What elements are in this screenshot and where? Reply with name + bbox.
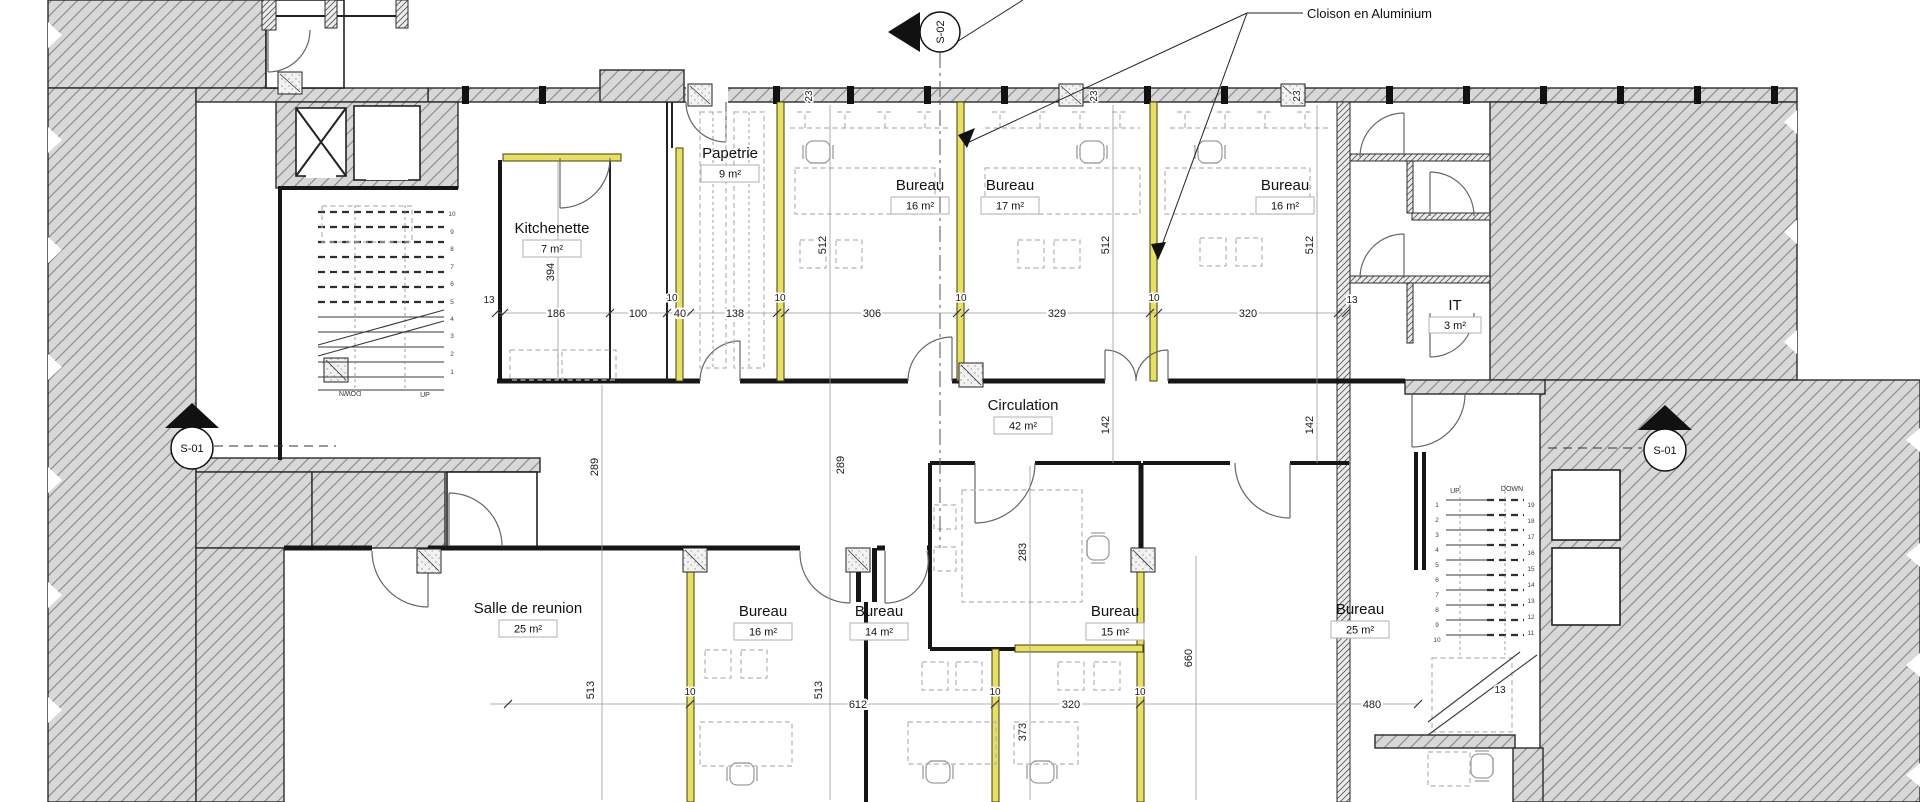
partition-bureau14-15: [992, 649, 999, 802]
stair-down-label: DOWN: [1501, 486, 1523, 493]
room-label-bureau-bottom-1: Bureau: [739, 603, 787, 620]
stair-number: 17: [1527, 534, 1535, 541]
chair-symbol: [705, 650, 731, 678]
room-label-salle: Salle de reunion: [474, 600, 582, 617]
dim-394: 394: [545, 263, 557, 281]
dim-513: 513: [585, 681, 597, 699]
s02-label: S-02: [935, 20, 947, 43]
chair-symbol: [922, 662, 948, 690]
dim-10: 10: [1148, 293, 1160, 304]
chair-symbol: [1236, 238, 1262, 266]
dim-329: 329: [1048, 308, 1066, 320]
dim-283: 283: [1017, 543, 1029, 561]
stair-number: 18: [1527, 518, 1535, 525]
chair-symbol: [956, 662, 982, 690]
wall-stair-bottom: [1375, 735, 1515, 748]
dim-wall-13: 13: [483, 295, 495, 306]
section-marker-s02: S-02: [888, 12, 960, 52]
cloison-annotation: Cloison en Aluminium: [1307, 6, 1432, 21]
dim-512: 512: [817, 236, 829, 254]
chair-symbol: [836, 240, 862, 268]
dim-480: 480: [1363, 699, 1381, 711]
dim-23: 23: [804, 90, 815, 102]
dim-660: 660: [1183, 649, 1195, 667]
stair-number: 10: [448, 211, 456, 218]
interior-hatched-walls: [1337, 102, 1490, 802]
stair-number: 10: [1433, 637, 1441, 644]
stair-number: 4: [450, 316, 454, 323]
floor-plan-drawing: 10 9 8 7 6 5 4 3 2 1 DOWN UP 19 18 17 16…: [0, 0, 1920, 802]
workstation-row: [1170, 112, 1330, 128]
dim-wall-13: 13: [1346, 295, 1358, 306]
wall-top-left-block: [48, 0, 266, 88]
chair-symbol: [1200, 238, 1226, 266]
kitchen-counter: [562, 350, 616, 380]
partition-kitchenette-top: [503, 154, 621, 161]
stair-number: 3: [450, 333, 454, 340]
annotation-leader: Cloison en Aluminium: [958, 6, 1432, 260]
room-label-it: IT: [1448, 297, 1461, 314]
room-label-bureau-top-3: Bureau: [1261, 177, 1309, 194]
room-label-circulation: Circulation: [988, 397, 1059, 414]
stair-number: 7: [1435, 592, 1439, 599]
chair-symbol: [934, 505, 956, 529]
dim-23: 23: [1292, 90, 1303, 102]
partition-bureau-17-16: [1150, 102, 1157, 381]
dim-289: 289: [589, 458, 601, 476]
s01-left-label: S-01: [180, 443, 203, 455]
room-label-bureau-top-1: Bureau: [896, 177, 944, 194]
stair-number: 12: [1527, 614, 1535, 621]
elevator-door-gap: [306, 170, 336, 178]
chair-symbol: [934, 547, 956, 571]
wall-top-jog: [600, 70, 684, 102]
interior-black-walls: [280, 102, 1426, 802]
dim-142: 142: [1304, 416, 1316, 434]
room-area-circulation: 42 m²: [1009, 421, 1037, 433]
room-area-bureau-bottom-1: 16 m²: [749, 627, 777, 639]
stair-number: 1: [1435, 502, 1439, 509]
dim-23: 23: [1089, 90, 1100, 102]
partition-meeting-bottom: [1015, 645, 1143, 652]
partition-salle-bureau16: [687, 554, 694, 802]
stair-number: 4: [1435, 547, 1439, 554]
stair-down-label: DOWN: [339, 389, 361, 396]
dim-142: 142: [1100, 416, 1112, 434]
room-label-bureau-bottom-2: Bureau: [855, 603, 903, 620]
room-labels: Kitchenette 7 m² Papetrie 9 m² Bureau 16…: [474, 145, 1481, 640]
dim-512: 512: [1100, 236, 1112, 254]
stair-number: 2: [1435, 517, 1439, 524]
right-shaft-a: [1552, 470, 1620, 540]
dim-10: 10: [1134, 687, 1146, 698]
partition-bureau15-25: [1137, 556, 1144, 802]
desk-table: [1428, 752, 1470, 786]
dim-138: 138: [726, 308, 744, 320]
room-area-bureau-bottom-2: 14 m²: [865, 627, 893, 639]
dim-10: 10: [989, 687, 1001, 698]
stair-number: 5: [1435, 562, 1439, 569]
dim-100: 100: [629, 308, 647, 320]
dim-306: 306: [863, 308, 881, 320]
chair-symbol: [1018, 240, 1044, 268]
dim-320b: 320: [1062, 699, 1080, 711]
dim-10: 10: [774, 293, 786, 304]
dim-320: 320: [1239, 308, 1257, 320]
stair-number: 7: [450, 264, 454, 271]
partition-bureau-16-17: [957, 102, 964, 381]
desk-table: [908, 722, 996, 764]
desk-table: [700, 722, 792, 766]
room-area-bureau-top-3: 16 m²: [1271, 201, 1299, 213]
stair-number: 14: [1527, 582, 1535, 589]
room-area-bureau-bottom-3: 15 m²: [1101, 627, 1129, 639]
shaft-door-gap: [366, 174, 408, 180]
stair-number: 8: [1435, 607, 1439, 614]
stair-number: 8: [450, 246, 454, 253]
partition-papetrie-right: [777, 102, 784, 381]
dim-612: 612: [849, 699, 867, 711]
dim-10: 10: [666, 293, 678, 304]
dim-40: 40: [674, 308, 686, 320]
dim-10: 10: [955, 293, 967, 304]
stair-number: 9: [1435, 622, 1439, 629]
s01-right-label: S-01: [1653, 445, 1676, 457]
exterior-hatched-walls: [48, 0, 1920, 802]
room-label-kitchenette: Kitchenette: [514, 220, 589, 237]
dim-186: 186: [547, 308, 565, 320]
wall-top-inner: [196, 88, 428, 102]
wall-stair-top: [1405, 380, 1545, 394]
room-area-it: 3 m²: [1444, 320, 1466, 332]
stairs-right: 19 18 17 16 15 14 13 12 11 1 2 3 4 5 6 7…: [1428, 485, 1537, 735]
stair-up-label: UP: [420, 392, 430, 399]
room-area-papetrie: 9 m²: [719, 169, 741, 181]
chair-symbol: [1094, 662, 1120, 690]
stair-number: 6: [1435, 577, 1439, 584]
shaft-room-a: [196, 472, 312, 548]
small-room: [447, 472, 537, 548]
room-label-bureau-top-2: Bureau: [986, 177, 1034, 194]
room-label-bureau-bottom-4: Bureau: [1336, 601, 1384, 618]
wall-under-stair: [1513, 748, 1543, 802]
stair-number: 2: [450, 351, 454, 358]
room-area-bureau-top-1: 16 m²: [906, 201, 934, 213]
workstation-row: [985, 112, 1140, 128]
partition-papetrie-left: [676, 148, 683, 381]
shaft-room-b: [312, 472, 445, 548]
dim-513: 513: [813, 681, 825, 699]
dim-373: 373: [1017, 723, 1029, 741]
service-shaft: [354, 106, 420, 180]
stair-up-label: UP: [1450, 488, 1460, 495]
chair-symbol: [1058, 662, 1084, 690]
room-area-bureau-top-2: 17 m²: [996, 201, 1024, 213]
dim-512: 512: [1304, 236, 1316, 254]
stair-number: 19: [1527, 502, 1535, 509]
kitchen-counter: [510, 350, 558, 380]
room-label-papetrie: Papetrie: [702, 145, 758, 162]
stair-number: 1: [450, 369, 454, 376]
right-shaft-b: [1552, 548, 1620, 625]
dim-289: 289: [835, 456, 847, 474]
room-area-salle: 25 m²: [514, 624, 542, 636]
room-label-bureau-bottom-3: Bureau: [1091, 603, 1139, 620]
workstation-row: [790, 112, 950, 128]
dim-10: 10: [684, 687, 696, 698]
dim-13-stair: 13: [1494, 685, 1506, 696]
stair-number: 15: [1527, 566, 1535, 573]
stair-number: 3: [1435, 532, 1439, 539]
stair-number: 5: [450, 299, 454, 306]
room-area-bureau-bottom-4: 25 m²: [1346, 625, 1374, 637]
stair-number: 16: [1527, 550, 1535, 557]
stair-number: 13: [1527, 598, 1535, 605]
wall-bottom-left-block: [196, 548, 284, 802]
wall-corridor-left: [196, 458, 540, 472]
floor-plan-page: 10 9 8 7 6 5 4 3 2 1 DOWN UP 19 18 17 16…: [0, 0, 1920, 802]
chair-symbol: [741, 650, 767, 678]
stair-number: 6: [450, 281, 454, 288]
stair-number: 11: [1528, 630, 1535, 637]
wall-top-right-block: [1490, 102, 1797, 380]
stair-number: 9: [450, 229, 454, 236]
room-area-kitchenette: 7 m²: [541, 244, 563, 256]
chair-symbol: [1054, 240, 1080, 268]
